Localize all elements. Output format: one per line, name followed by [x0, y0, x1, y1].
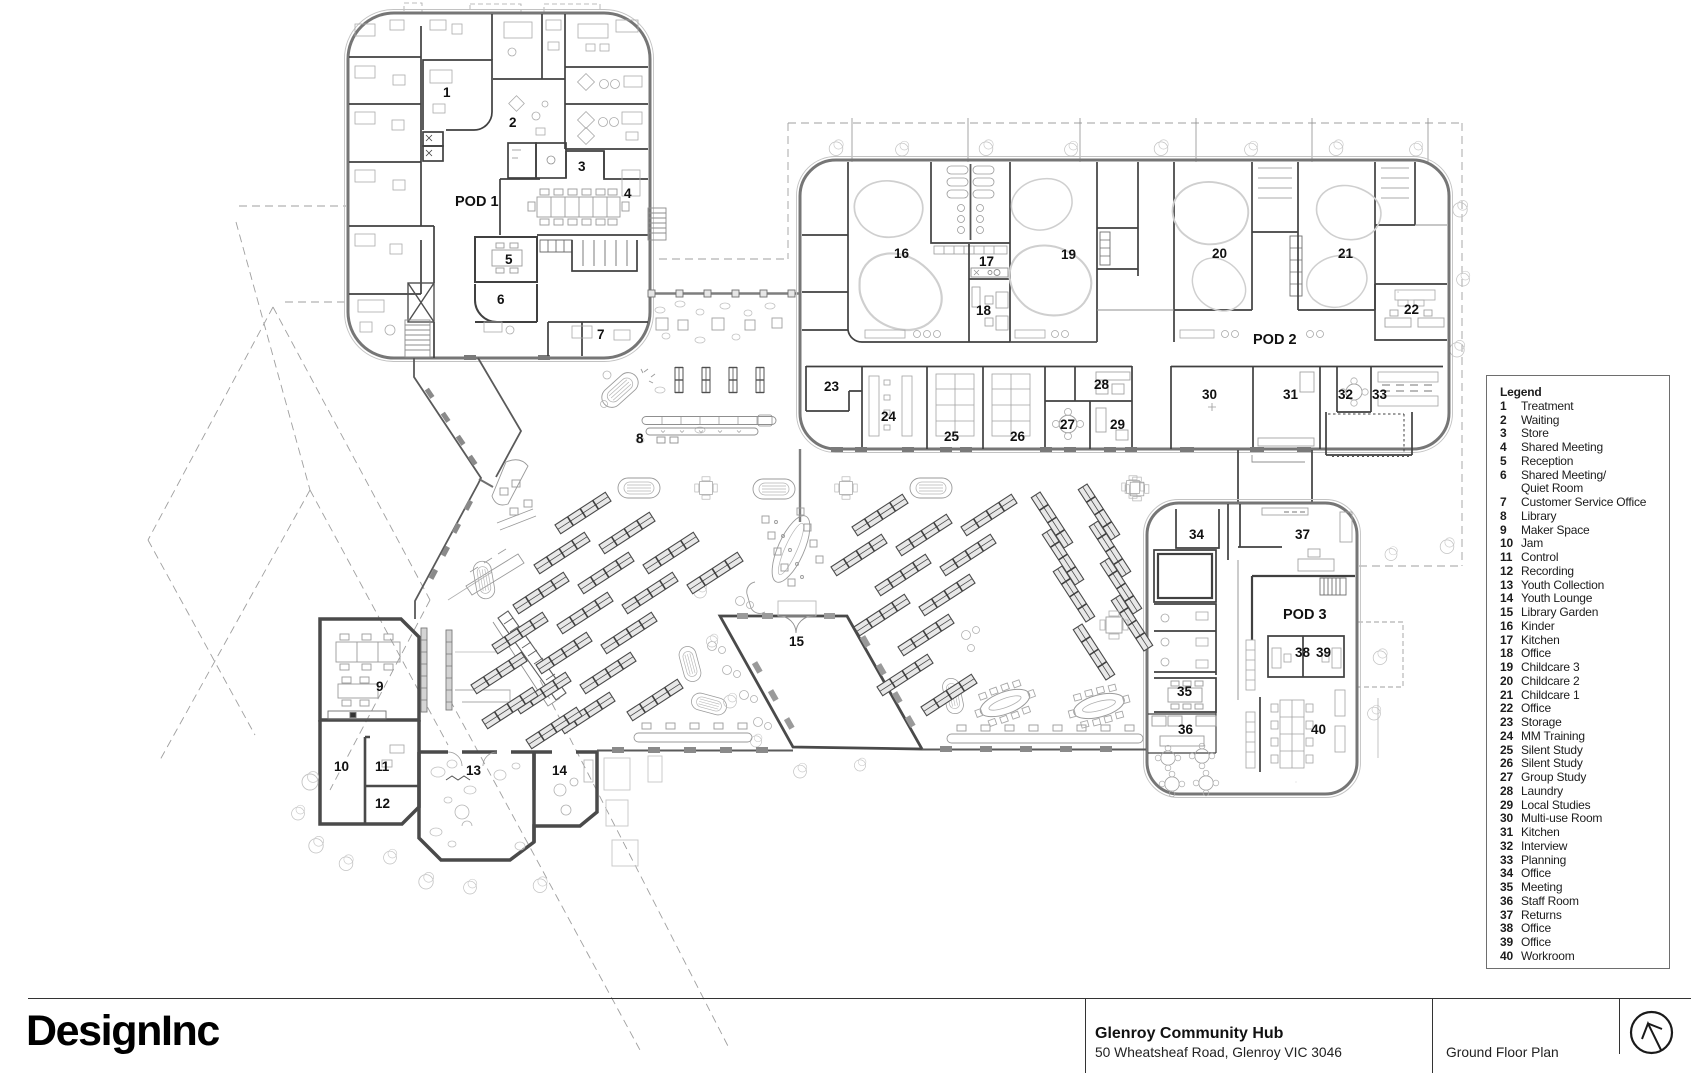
svg-text:36: 36 — [1178, 722, 1194, 737]
svg-text:26: 26 — [1010, 429, 1026, 444]
svg-text:35: 35 — [1177, 684, 1193, 699]
svg-text:40: 40 — [1311, 722, 1326, 737]
svg-text:7: 7 — [597, 327, 605, 342]
svg-text:29: 29 — [1110, 417, 1125, 432]
svg-text:8: 8 — [636, 431, 644, 446]
svg-text:32: 32 — [1338, 387, 1353, 402]
svg-text:17: 17 — [979, 254, 994, 269]
svg-text:27: 27 — [1060, 417, 1075, 432]
svg-text:POD 2: POD 2 — [1253, 332, 1297, 348]
svg-text:30: 30 — [1202, 387, 1217, 402]
svg-text:DesignInc: DesignInc — [26, 1007, 219, 1055]
svg-text:21: 21 — [1338, 246, 1354, 261]
svg-text:4: 4 — [624, 186, 632, 201]
svg-text:31: 31 — [1283, 387, 1299, 402]
svg-text:9: 9 — [376, 679, 384, 694]
svg-text:1: 1 — [443, 85, 451, 100]
svg-text:37: 37 — [1295, 527, 1310, 542]
svg-text:16: 16 — [894, 246, 910, 261]
svg-text:POD 3: POD 3 — [1283, 607, 1327, 623]
svg-text:13: 13 — [466, 763, 482, 778]
svg-text:2: 2 — [509, 115, 517, 130]
svg-text:22: 22 — [1404, 302, 1419, 317]
svg-text:6: 6 — [497, 292, 505, 307]
svg-text:33: 33 — [1372, 387, 1388, 402]
svg-text:19: 19 — [1061, 247, 1076, 262]
svg-text:23: 23 — [824, 379, 840, 394]
svg-text:12: 12 — [375, 796, 390, 811]
svg-text:18: 18 — [976, 303, 992, 318]
svg-text:39: 39 — [1316, 645, 1331, 660]
svg-text:10: 10 — [334, 759, 349, 774]
svg-text:25: 25 — [944, 429, 960, 444]
svg-text:3: 3 — [578, 159, 586, 174]
svg-text:34: 34 — [1189, 527, 1205, 542]
svg-text:POD 1: POD 1 — [455, 194, 499, 210]
svg-text:24: 24 — [881, 409, 897, 424]
svg-text:14: 14 — [552, 763, 568, 778]
svg-text:50 Wheatsheaf Road, Glenroy VI: 50 Wheatsheaf Road, Glenroy VIC 3046 — [1095, 1045, 1342, 1060]
svg-text:38: 38 — [1295, 645, 1311, 660]
svg-text:28: 28 — [1094, 377, 1110, 392]
svg-text:5: 5 — [505, 252, 513, 267]
svg-text:11: 11 — [375, 759, 390, 774]
svg-text:Ground Floor Plan: Ground Floor Plan — [1446, 1045, 1559, 1060]
svg-text:15: 15 — [789, 634, 805, 649]
svg-text:20: 20 — [1212, 246, 1227, 261]
svg-text:Glenroy Community Hub: Glenroy Community Hub — [1095, 1025, 1284, 1042]
